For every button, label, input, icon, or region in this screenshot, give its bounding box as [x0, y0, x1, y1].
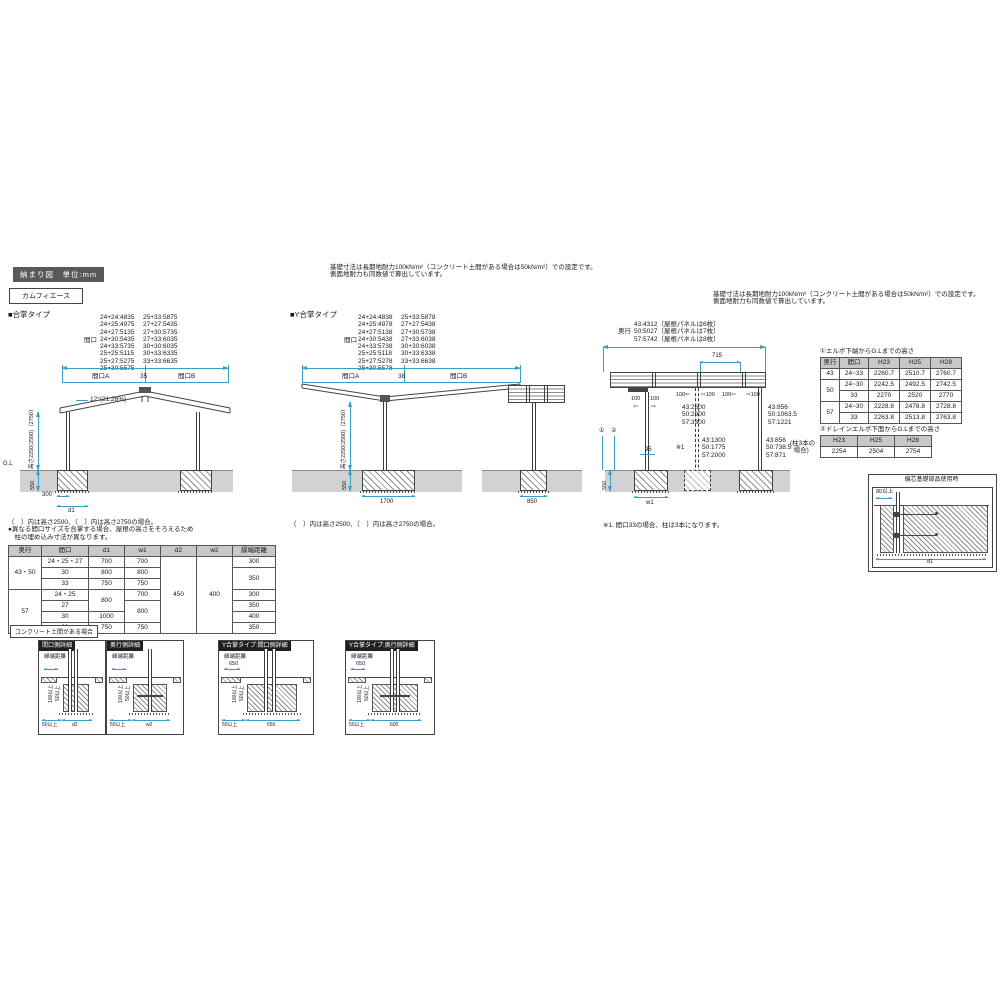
- depth-post2-dims: 43:856 50:738.5 57:871: [766, 437, 791, 459]
- depth-span2-dims: 43:1300 50:1775 57:2000: [702, 437, 726, 459]
- width-dim: [62, 720, 92, 721]
- gassho-slope-label: 12°(21.26%): [90, 396, 126, 403]
- gravel-line: [178, 491, 214, 493]
- gassho-gap-label: 35: [140, 373, 147, 380]
- cell: 27: [42, 601, 89, 612]
- gravel-line: [243, 713, 301, 715]
- dim-tick: [700, 362, 701, 372]
- table-row: 33 2263.8 2513.8 2763.8: [821, 413, 962, 424]
- ygassho-section-title: ■Y合掌タイプ: [290, 311, 337, 319]
- edge-distance-dim: [351, 669, 365, 670]
- depth-550-dim: [610, 470, 611, 491]
- cell: 1000: [89, 612, 125, 623]
- cell: 400: [197, 557, 233, 634]
- col-header: w2: [197, 546, 233, 557]
- depth-dims-list: 43:4312〔屋根パネルは6枚〕 50:5027〔屋根パネルは7枚〕 57:5…: [634, 321, 720, 343]
- slab-joint: [529, 386, 530, 402]
- b50-dim: [110, 720, 131, 721]
- joint-dim-2-right: ⇨100: [746, 392, 760, 398]
- col-header: 奥行: [821, 358, 840, 369]
- eccentric-box-title: 偏芯基礎部品使用時: [868, 477, 995, 484]
- detail-box-depth: 奥行側詳細 縁端距離 100以上 50以上 50以上 w2: [106, 640, 184, 735]
- ygassho-foundation: [362, 470, 415, 491]
- ecc-bolt-dot-lower: [935, 533, 938, 536]
- yside-foundation: [520, 470, 547, 491]
- b50-dim: [222, 720, 245, 721]
- v100-label: 100以上: [49, 685, 55, 703]
- slab-left-hatch: [348, 677, 366, 683]
- cell: 800: [89, 568, 125, 579]
- post-section: [390, 649, 394, 712]
- gassho-note: （ ）内は高さ2500、〔 〕内は高さ2750の場合。 ●異なる間口サイズを合掌…: [8, 519, 194, 541]
- ygassho-dims-col1: 24+24:4838 24+25:4978 24+27:5138 24+30:5…: [358, 314, 393, 372]
- gravel-line: [518, 491, 549, 493]
- cell: 2254: [821, 447, 858, 458]
- edge-distance-dim: [112, 669, 126, 670]
- ygassho-height-label: 高さ2250(2500)〔2750〕: [341, 407, 347, 469]
- gassho-maguchi-label: 間口: [84, 337, 97, 344]
- edge-distance-label: 縁端距離: [351, 654, 373, 660]
- depth-715-dim: [700, 362, 740, 363]
- b50-label: 50以上: [222, 723, 238, 729]
- width-dim: [246, 720, 300, 721]
- v50-label: 50以上: [365, 685, 371, 701]
- depth-post1-dims: 43:856 50:1063.5 57:1221: [768, 404, 797, 426]
- gravel-line: [129, 713, 171, 715]
- cell: 2228.8: [869, 402, 900, 413]
- gassho-550-dim: [38, 470, 39, 491]
- v50-label: 50以上: [56, 685, 62, 701]
- col-header: 奥行: [9, 546, 42, 557]
- cell: 350: [233, 623, 276, 634]
- slab-joint: [700, 373, 701, 387]
- ecc-bolt-lower: [893, 533, 900, 538]
- joint-dim-2-left: 100⇦: [722, 392, 736, 398]
- cell: 33: [840, 391, 869, 402]
- col-header: d1: [89, 546, 125, 557]
- table-row: 43 24~33 2260.7 2510.7 2760.7: [821, 369, 962, 380]
- arrow-left-icon: ⇦: [633, 404, 638, 411]
- b50-dim: [349, 720, 370, 721]
- depth-95-label: 95: [645, 447, 652, 454]
- edge-distance-dim: [44, 669, 58, 670]
- col-header: d2: [161, 546, 197, 557]
- slab-right-hatch: [424, 677, 432, 683]
- gravel-line: [737, 491, 775, 493]
- cell: 50: [821, 380, 840, 402]
- gassho-section-title: ■合掌タイプ: [8, 311, 50, 319]
- depth-w1-label: w1: [646, 500, 654, 507]
- cell: 43・50: [9, 557, 42, 590]
- slab-left-hatch: [221, 677, 241, 683]
- title-badge: 納まり図 単位:mm: [13, 267, 104, 282]
- cell: 24~30: [840, 380, 869, 391]
- post-section: [148, 649, 152, 712]
- edge-distance-value: 650: [229, 661, 238, 667]
- ecc-foundation-hatch: [903, 505, 988, 553]
- width-dim: [132, 720, 170, 721]
- cell: 2513.8: [900, 413, 931, 424]
- post-section: [264, 649, 268, 712]
- gravel-line: [368, 713, 422, 715]
- elbow-table-title: ①エルボ下端からG.Lまでの高さ: [820, 348, 914, 355]
- cell: 30: [42, 612, 89, 623]
- slab-left-hatch: [109, 677, 127, 683]
- dim-tick: [62, 365, 63, 383]
- drain-table-title: ②ドレインエルボ下面からG.Lまでの高さ: [820, 426, 940, 433]
- ecc-80-dim: [876, 498, 892, 499]
- detail-box-maguchi: 間口側詳細 縁端距離 100以上 50以上 50以上 d2: [38, 640, 106, 735]
- gravel-line: [59, 713, 93, 715]
- cell: 400: [233, 612, 276, 623]
- cell: 2270: [869, 391, 900, 402]
- arrow-right-icon: ⇨: [651, 404, 656, 411]
- table-row: 57 24~30 2228.8 2478.8 2728.8: [821, 402, 962, 413]
- cell: 2728.8: [931, 402, 962, 413]
- gassho-300-label: 300: [42, 492, 52, 499]
- ecc-d1-label: d1: [927, 559, 933, 565]
- b50-label: 50以上: [349, 723, 365, 729]
- col-header: H23: [821, 436, 858, 447]
- yside-850-dim: [520, 496, 547, 497]
- ecc-bolt-upper: [893, 512, 900, 517]
- depth-center-foundation-dashed: [684, 470, 711, 491]
- depth-715-label: 715: [712, 353, 722, 360]
- depth-w1-dim: [634, 497, 668, 498]
- b50-dim: [42, 720, 61, 721]
- joint-dim-1-left: 100⇦: [676, 392, 690, 398]
- col-header: H23: [869, 358, 900, 369]
- anchor-crossbar: [380, 695, 410, 697]
- col-header: H25: [858, 436, 895, 447]
- gassho-span-b-label: 間口B: [178, 373, 195, 380]
- ecc-bolt-dot-upper: [935, 512, 938, 515]
- detail-box-y-maguchi: Y合掌タイプ:間口側詳細 縁端距離 650 100以上 50以上 50以上 65…: [218, 640, 314, 735]
- cell: 700: [125, 557, 161, 568]
- depth-overall-dim: [603, 347, 765, 348]
- post-section: [272, 649, 276, 712]
- ecc-bolt-line-upper: [900, 514, 936, 515]
- slab-joint: [745, 373, 746, 387]
- v100-label: 100以上: [358, 685, 364, 703]
- table-row: 2254 2504 2754: [821, 447, 932, 458]
- gravel-line: [877, 554, 988, 556]
- slab-joint: [544, 386, 545, 402]
- gassho-d1-label: d1: [68, 508, 75, 515]
- gravel-line: [55, 491, 90, 493]
- foundation-dimension-table: 奥行 間口 d1 w1 d2 w2 縁端距離 43・50 24・25・27 70…: [8, 545, 276, 634]
- edge-distance-value: 650: [356, 661, 365, 667]
- dim-tick: [765, 347, 766, 372]
- slab-right-hatch: [173, 677, 181, 683]
- width-label: 600: [390, 723, 398, 729]
- v50-label: 50以上: [240, 685, 246, 701]
- v50-label: 50以上: [126, 685, 132, 701]
- dim-tick: [603, 347, 604, 372]
- installation-drawing-page: 納まり図 単位:mm カムフィエース 基礎寸法は長期地耐力100kN/m²（コン…: [0, 0, 1000, 1000]
- elbow-height-table: 奥行 間口 H23 H25 H28 43 24~33 2260.7 2510.7…: [820, 357, 962, 424]
- detail-box-title: Y合掌タイプ:奥行側詳細: [346, 641, 418, 651]
- table-row: 27 800 350: [9, 601, 276, 612]
- width-label: w2: [146, 723, 152, 729]
- cell: 24・25・27: [42, 557, 89, 568]
- post-section: [396, 649, 400, 712]
- edge-distance-label: 縁端距離: [44, 654, 66, 660]
- gl-label: G.L: [3, 461, 13, 468]
- cell: 33: [840, 413, 869, 424]
- ygassho-note: （ ）内は高さ2500、〔 〕内は高さ2750の場合。: [290, 521, 439, 528]
- gassho-d1-dim: [57, 506, 88, 507]
- table-row: 33 2270 2520 2770: [821, 391, 962, 402]
- depth-label: 奥行: [618, 328, 631, 335]
- cell: 350: [233, 601, 276, 612]
- detail-box-y-depth: Y合掌タイプ:奥行側詳細 縁端距離 650 100以上 50以上 50以上 60…: [345, 640, 435, 735]
- product-name-box: カムフィエース: [9, 288, 83, 304]
- gassho-right-foundation: [180, 470, 212, 491]
- cell: 700: [125, 590, 161, 601]
- cell: 30: [42, 568, 89, 579]
- drain-height-table: H23 H25 H28 2254 2504 2754: [820, 435, 932, 458]
- depth-span1-dims: 43:2600 50:2900 57:3300: [682, 404, 706, 426]
- three-posts-note: (柱3本の 場合): [790, 440, 815, 455]
- concrete-case-label: コンクリート土間がある場合: [10, 625, 98, 638]
- ygassho-550-dim: [350, 470, 351, 491]
- ecc-post: [896, 492, 900, 553]
- cell: 2242.5: [869, 380, 900, 391]
- leader-95: [640, 454, 655, 455]
- gassho-height-label: 高さ2250(2500)〔2750〕: [29, 407, 35, 469]
- cell: 24~33: [840, 369, 869, 380]
- cell: 300: [233, 590, 276, 601]
- dim-tick: [740, 362, 741, 372]
- depth-footnote: ※1. 間口33の場合、柱は3本になります。: [603, 522, 723, 529]
- cell: 2754: [895, 447, 932, 458]
- depth-ast1-label: ※1: [676, 445, 684, 452]
- width-label: 650: [267, 723, 275, 729]
- slab-joint: [547, 386, 548, 402]
- cell: 57: [821, 402, 840, 424]
- cell: 300: [233, 557, 276, 568]
- ygassho-1700-label: 1700: [380, 499, 393, 506]
- cell: 2760.7: [931, 369, 962, 380]
- depth-right-foundation: [739, 470, 773, 491]
- cell: 700: [89, 557, 125, 568]
- cell: 2763.8: [931, 413, 962, 424]
- cell: 750: [89, 579, 125, 590]
- width-label: d2: [72, 723, 78, 729]
- gassho-left-foundation: [57, 470, 88, 491]
- gassho-dims-col2: 25+33:5875 27+27:5435 27+30:5735 27+33:6…: [143, 314, 178, 365]
- ref2-dim-line: [614, 436, 615, 470]
- cell: 33: [42, 579, 89, 590]
- ref2-circle-label: ②: [611, 428, 616, 435]
- gassho-span-a-label: 間口A: [92, 373, 109, 380]
- cell: 2478.8: [900, 402, 931, 413]
- gassho-550-label: 550: [30, 481, 36, 490]
- table-row: 57 24・25 800 700 300: [9, 590, 276, 601]
- foundation-note-right: 基礎寸法は長期地耐力100kN/m²（コンクリート土間がある場合は50kN/m²…: [713, 291, 980, 306]
- cell: 2520: [900, 391, 931, 402]
- yside-roof-slab: [508, 385, 565, 403]
- ygassho-roof-drawing: [300, 380, 522, 406]
- slab-right-hatch: [95, 677, 103, 683]
- depth-550-label: 550: [602, 481, 608, 490]
- b50-label: 50以上: [42, 723, 58, 729]
- slope-leader-line: [76, 400, 88, 401]
- v100-label: 100以上: [233, 685, 239, 703]
- cell: 2263.8: [869, 413, 900, 424]
- ref1-circle-label: ①: [599, 428, 604, 435]
- slab-joint: [742, 373, 743, 387]
- foundation-section: [372, 684, 418, 712]
- table-row: 30 800 800 350: [9, 568, 276, 579]
- post-section: [68, 649, 72, 712]
- ref1-dim-line: [602, 436, 603, 470]
- cell: 800: [89, 590, 125, 612]
- ecc-80-label: 80以上: [876, 489, 893, 495]
- cell: 750: [125, 579, 161, 590]
- gravel-line: [360, 491, 417, 493]
- slab-right-hatch: [303, 677, 311, 683]
- slab-joint: [526, 386, 527, 402]
- v100-label: 100以上: [119, 685, 125, 703]
- depth-left-foundation: [634, 470, 668, 491]
- detail-box-title: Y合掌タイプ:間口側詳細: [219, 641, 291, 651]
- col-header: 縁端距離: [233, 546, 276, 557]
- cell: 2770: [931, 391, 962, 402]
- col-header: H25: [900, 358, 931, 369]
- slab-left-hatch: [41, 677, 57, 683]
- cell: 800: [125, 568, 161, 579]
- yside-850-label: 850: [527, 499, 537, 506]
- cell: 2492.5: [900, 380, 931, 391]
- col-header: H28: [895, 436, 932, 447]
- gassho-span-line: [62, 382, 228, 383]
- b50-label: 50以上: [110, 723, 126, 729]
- ygassho-550-label: 550: [342, 481, 348, 490]
- cell: 800: [125, 601, 161, 623]
- slab-joint: [697, 373, 698, 387]
- cell: 43: [821, 369, 840, 380]
- col-header: 間口: [42, 546, 89, 557]
- ygassho-dims-col2: 25+33:5878 27+27:5438 27+30:5738 27+33:6…: [401, 314, 436, 365]
- ygassho-1700-dim: [362, 496, 415, 497]
- detail-box-title: 奥行側詳細: [107, 641, 143, 651]
- cell: 450: [161, 557, 197, 634]
- ecc-bolt-line-lower: [900, 535, 936, 536]
- gassho-dims-col1: 24+24:4835 24+25:4975 24+27:5135 24+30:5…: [100, 314, 135, 372]
- width-dim: [371, 720, 421, 721]
- gassho-300-dim: [57, 496, 69, 497]
- cell: 24~30: [840, 402, 869, 413]
- overhang-100-left: 100: [631, 396, 640, 402]
- cell: 24・25: [42, 590, 89, 601]
- post-section: [74, 649, 78, 712]
- joint-dim-1-right: ⇨100: [701, 392, 715, 398]
- cell: 2504: [858, 447, 895, 458]
- cell: 2742.5: [931, 380, 962, 391]
- col-header: 間口: [840, 358, 869, 369]
- slab-joint: [655, 373, 656, 387]
- anchor-crossbar: [137, 695, 163, 697]
- table-row: 43・50 24・25・27 700 700 450 400 300: [9, 557, 276, 568]
- slab-joint: [652, 373, 653, 387]
- col-header: H28: [931, 358, 962, 369]
- foundation-note-center: 基礎寸法は長期地耐力100kN/m²（コンクリート土間がある場合は50kN/m²…: [330, 264, 597, 279]
- cell: 350: [233, 568, 276, 590]
- gassho-height-dim: [38, 412, 39, 470]
- cell: 2510.7: [900, 369, 931, 380]
- edge-distance-dim: [224, 669, 240, 670]
- edge-distance-label: 縁端距離: [224, 654, 246, 660]
- ygassho-overall-dim: [302, 368, 520, 369]
- cell: 750: [125, 623, 161, 634]
- ecc-wall-hatch: [880, 505, 894, 553]
- table-row: 50 24~30 2242.5 2492.5 2742.5: [821, 380, 962, 391]
- dim-tick: [228, 365, 229, 383]
- edge-distance-label: 縁端距離: [112, 654, 134, 660]
- cell: 2260.7: [869, 369, 900, 380]
- ygassho-height-dim: [350, 402, 351, 470]
- overhang-100-right: 100: [650, 396, 659, 402]
- gravel-line: [632, 491, 670, 493]
- col-header: w1: [125, 546, 161, 557]
- ygassho-maguchi-label: 間口: [344, 337, 357, 344]
